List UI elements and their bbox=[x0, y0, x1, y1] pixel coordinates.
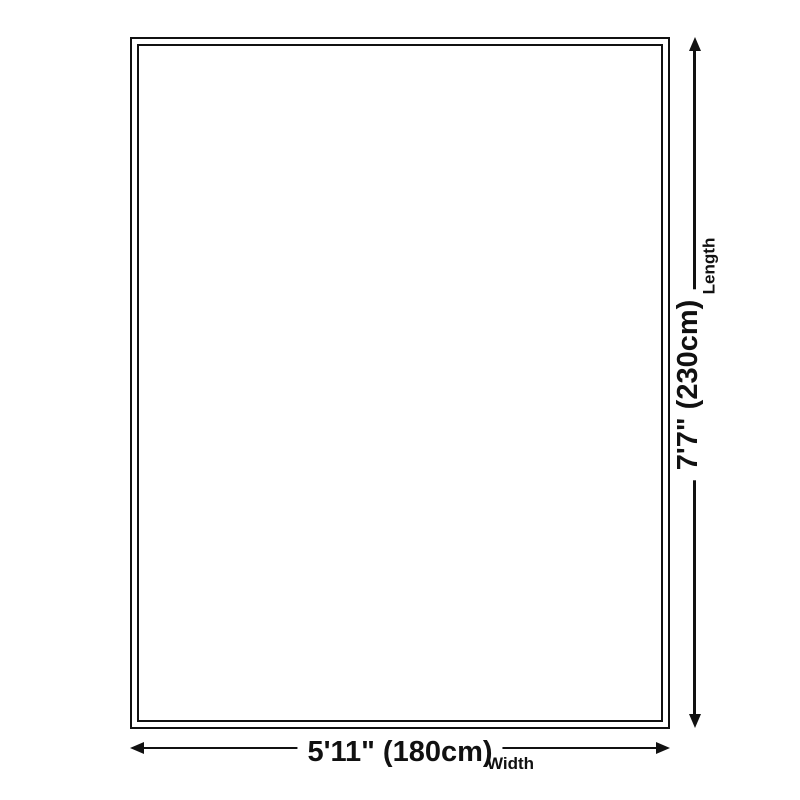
width-dimension-value: 5'11" (180cm) bbox=[297, 737, 502, 769]
length-dimension-value: 7'7" (230cm) bbox=[673, 290, 705, 481]
arrowhead-right-icon bbox=[656, 742, 670, 754]
dimension-diagram: 7'7" (230cm) Length 5'11" (180cm) Width bbox=[0, 0, 800, 800]
rug-outline-inner bbox=[137, 44, 663, 722]
arrowhead-up-icon bbox=[689, 37, 701, 51]
rug-outline-outer bbox=[130, 37, 670, 729]
arrowhead-left-icon bbox=[130, 742, 144, 754]
arrowhead-down-icon bbox=[689, 714, 701, 728]
length-axis-label: Length bbox=[701, 238, 718, 295]
width-axis-label: Width bbox=[487, 755, 534, 772]
